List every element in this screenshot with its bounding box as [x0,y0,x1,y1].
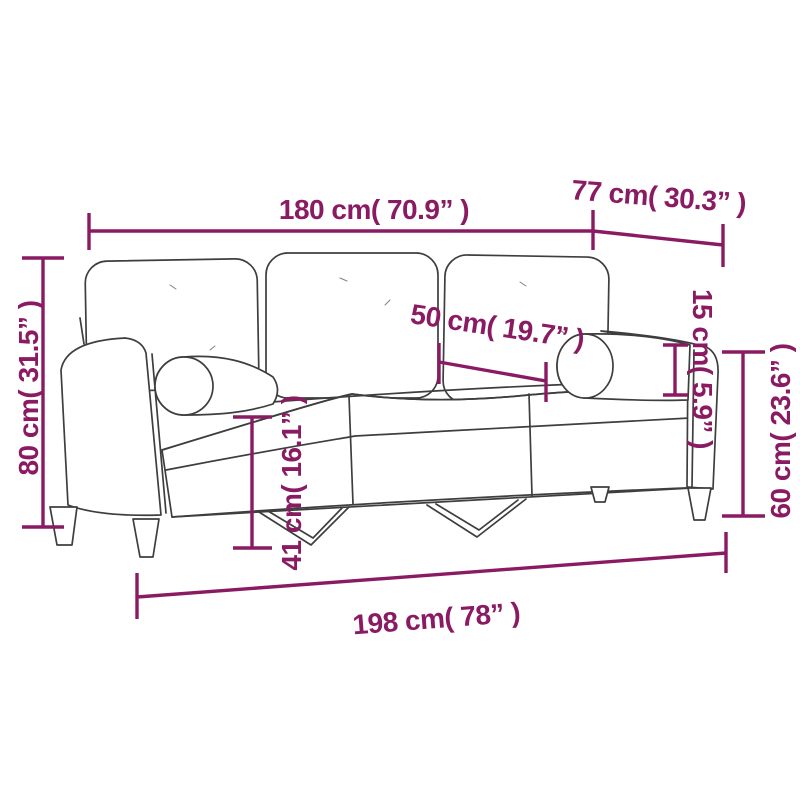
dim-arm-height-right: 60 cm( 23.6” ) [722,343,796,518]
dim-bolster-diameter-label: 15 cm( 5.9” ) [687,289,718,449]
sofa-frame-post-left [80,318,84,344]
sofa-drawing [50,253,718,557]
rear-right-leg [591,487,609,502]
dim-overall-width-bottom: 198 cm( 78” ) [137,532,726,640]
sofa-dimension-diagram-page: 180 cm( 70.9” ) 77 cm( 30.3” ) 80 cm( 31… [0,0,800,800]
dim-depth-top-label: 77 cm( 30.3” ) [570,174,747,219]
dim-depth-top-line [593,224,723,267]
sofa-dimension-diagram: 180 cm( 70.9” ) 77 cm( 30.3” ) 80 cm( 31… [0,0,800,800]
dim-depth-top: 77 cm( 30.3” ) [570,174,747,267]
dim-arm-height-right-line [722,352,765,516]
dim-seat-span-top-label: 180 cm( 70.9” ) [279,194,469,225]
front-left-leg [133,519,159,557]
dim-arm-height-right-label: 60 cm( 23.6” ) [765,343,796,518]
dim-overall-width-bottom-label: 198 cm( 78” ) [351,597,521,641]
dim-overall-height-left-label: 80 cm( 31.5” ) [13,300,44,475]
dim-seat-span-top: 180 cm( 70.9” ) [89,194,593,250]
front-right-leg [688,488,711,520]
sled-leg-right [427,499,526,537]
dim-overall-height-left: 80 cm( 31.5” ) [13,258,64,527]
left-bolster-end-cap [155,357,213,415]
left-armrest [61,338,161,515]
dim-seat-height-label: 41 cm( 16.1” ) [276,395,307,570]
